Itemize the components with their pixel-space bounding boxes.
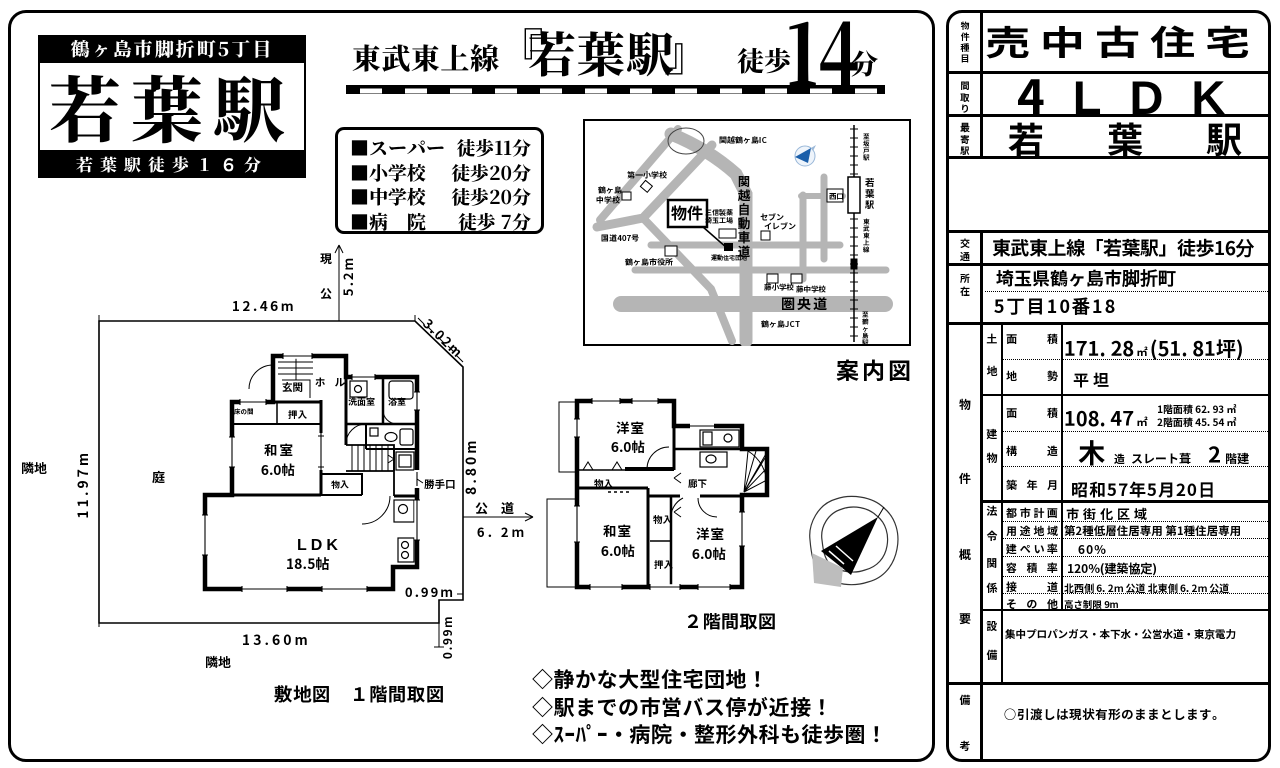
svg-text:和室: 和室 bbox=[603, 520, 632, 540]
svg-text:6.0帖: 6.0帖 bbox=[611, 436, 645, 456]
svg-text:6.0帖: 6.0帖 bbox=[692, 543, 726, 563]
svg-text:6.0帖: 6.0帖 bbox=[601, 540, 635, 560]
svg-text:洋室: 洋室 bbox=[616, 417, 645, 437]
svg-text:物入: 物入 bbox=[594, 476, 614, 490]
svg-text:押入: 押入 bbox=[653, 557, 674, 571]
svg-text:洋室: 洋室 bbox=[696, 523, 725, 543]
svg-text:廊下: 廊下 bbox=[688, 476, 707, 490]
svg-text:物入: 物入 bbox=[653, 512, 673, 526]
